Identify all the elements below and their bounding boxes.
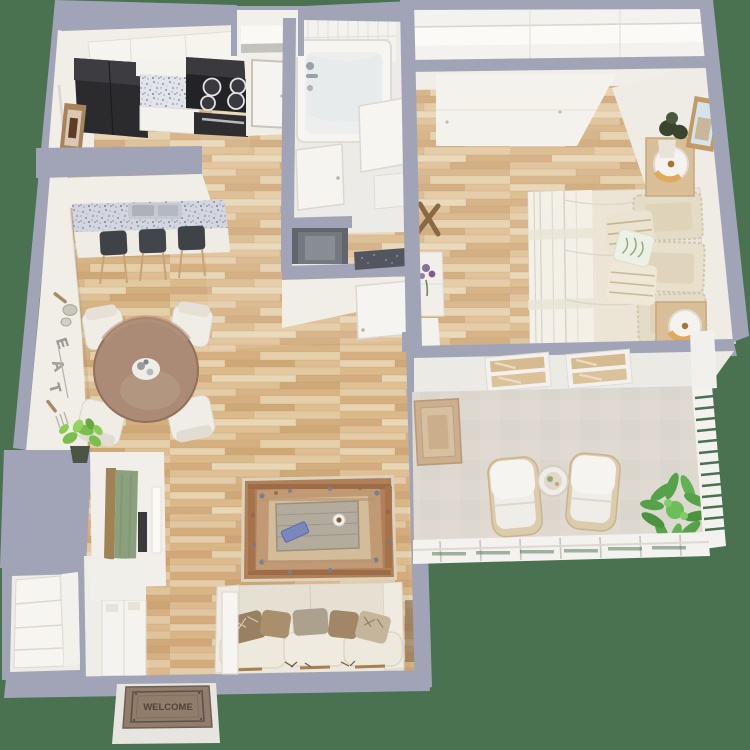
- svg-text:WELCOME: WELCOME: [143, 702, 193, 713]
